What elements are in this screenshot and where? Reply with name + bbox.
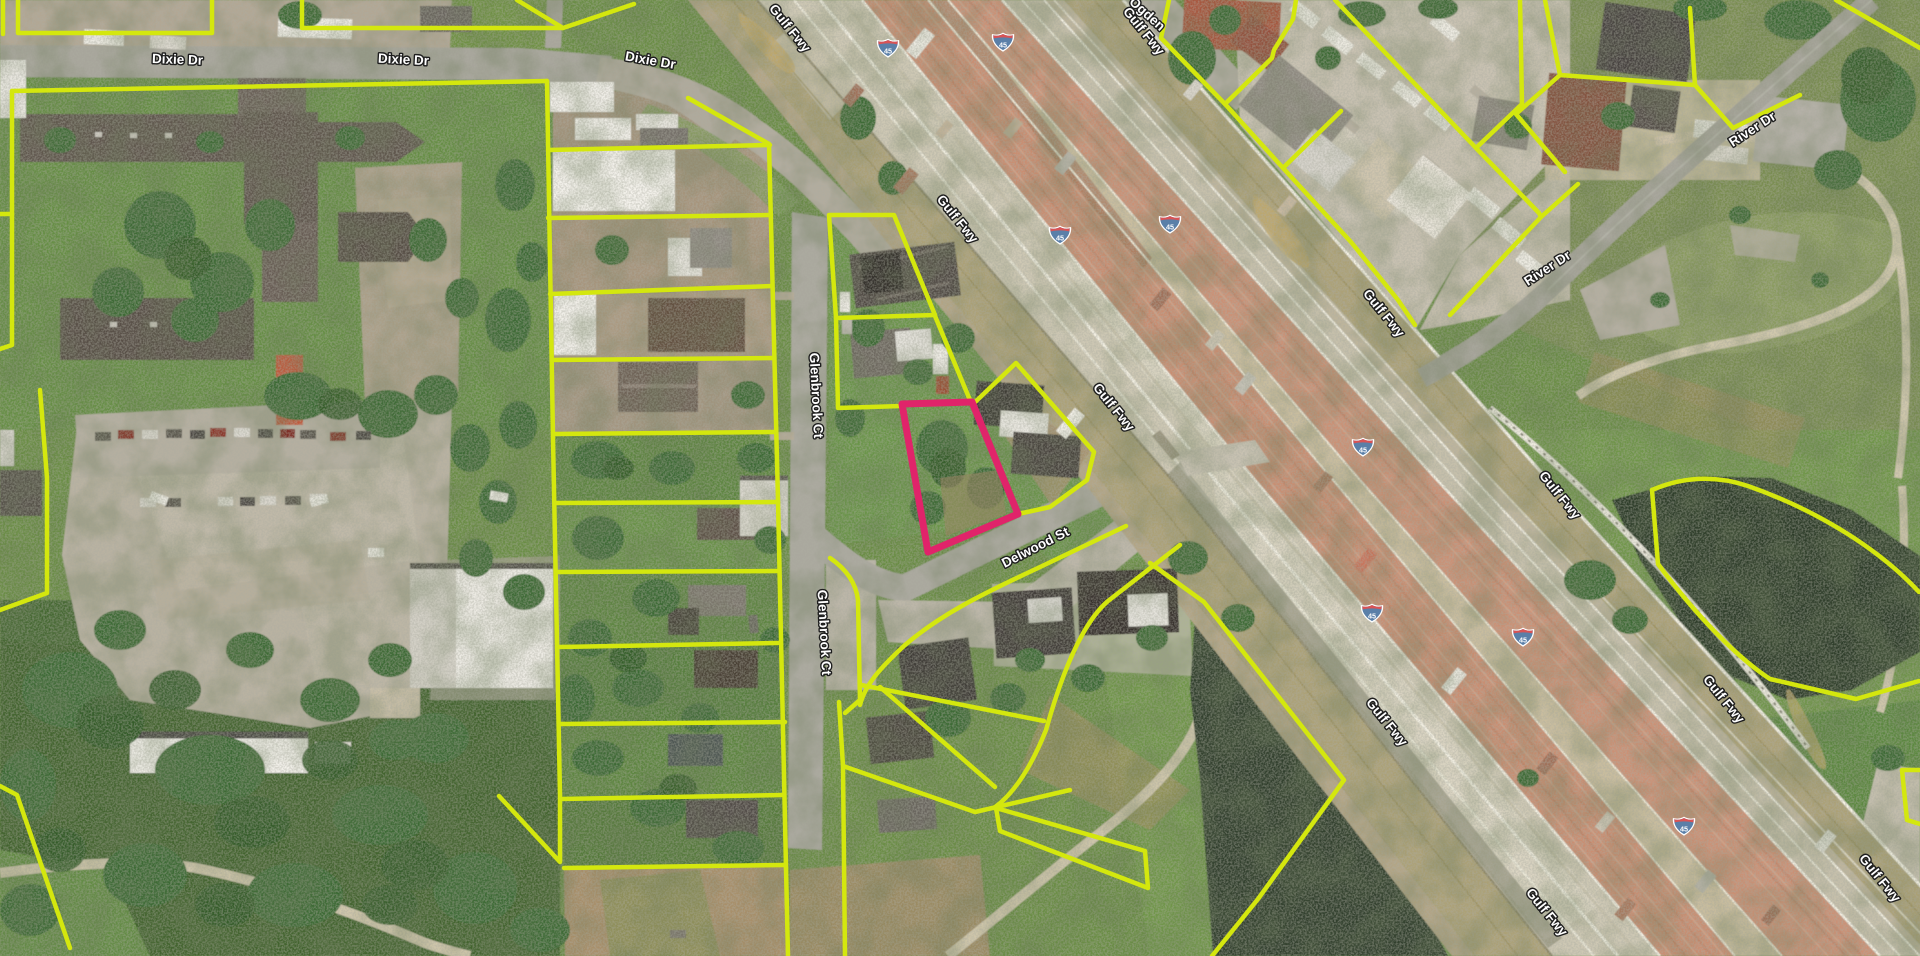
svg-text:Dixie Dr: Dixie Dr — [378, 51, 430, 69]
svg-text:Dixie Dr: Dixie Dr — [152, 51, 204, 68]
